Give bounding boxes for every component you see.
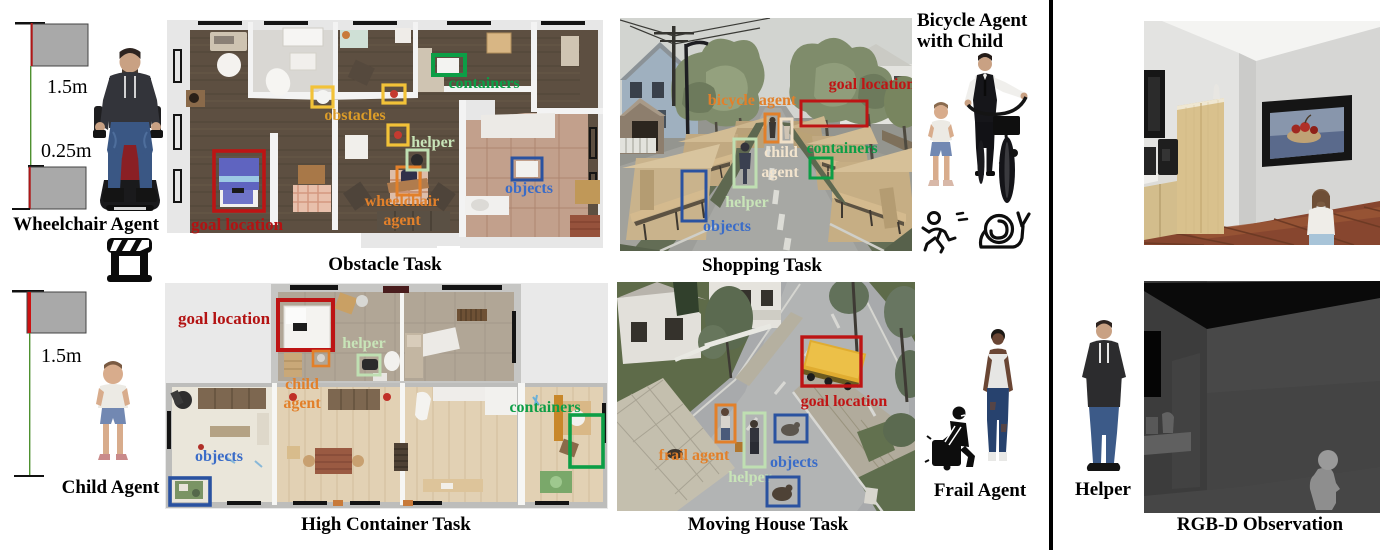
svg-text:goal location: goal location xyxy=(801,393,888,410)
svg-text:child: child xyxy=(764,144,798,161)
svg-text:wheelchair: wheelchair xyxy=(365,193,440,210)
svg-text:objects: objects xyxy=(703,218,751,235)
svg-text:helper: helper xyxy=(411,134,455,151)
svg-text:helper: helper xyxy=(728,469,772,486)
svg-text:agent: agent xyxy=(283,395,321,412)
svg-text:child: child xyxy=(285,376,319,393)
svg-text:1.5m: 1.5m xyxy=(47,76,88,98)
svg-text:objects: objects xyxy=(770,454,818,471)
svg-text:agent: agent xyxy=(761,164,799,181)
svg-text:frail agent: frail agent xyxy=(659,447,730,464)
svg-text:helper: helper xyxy=(342,335,386,352)
svg-text:agent: agent xyxy=(383,212,421,229)
svg-text:0.25m: 0.25m xyxy=(41,140,92,162)
svg-text:helper: helper xyxy=(725,194,769,211)
svg-text:obstacles: obstacles xyxy=(324,107,385,124)
svg-text:objects: objects xyxy=(195,448,243,465)
svg-text:containers: containers xyxy=(806,140,877,157)
svg-text:containers: containers xyxy=(448,75,519,92)
svg-text:goal location: goal location xyxy=(829,76,912,93)
svg-text:goal location: goal location xyxy=(191,215,284,234)
svg-text:1.5m: 1.5m xyxy=(41,345,82,367)
svg-text:objects: objects xyxy=(505,180,553,197)
svg-text:containers: containers xyxy=(509,399,580,416)
svg-text:goal location: goal location xyxy=(178,309,271,328)
svg-text:bicycle agent: bicycle agent xyxy=(708,92,797,109)
